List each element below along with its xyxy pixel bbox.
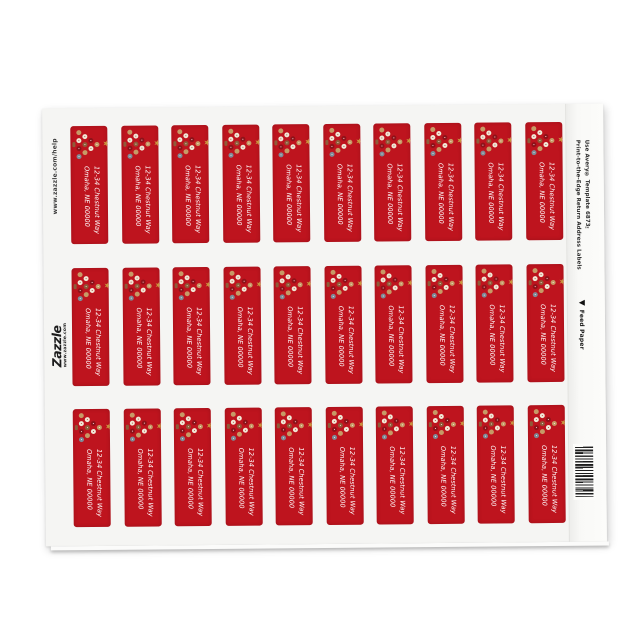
address-label: ★ 12-34 Chestnut Way Omaha, NE 00000 — [373, 123, 411, 241]
christmas-tree-graphic: ★ — [272, 128, 308, 158]
address-label-content: ★ 12-34 Chestnut Way Omaha, NE 00000 — [424, 123, 462, 241]
ornament-icon — [532, 276, 537, 281]
address-line1: 12-34 Chestnut Way — [549, 445, 560, 521]
address-label-content: ★ 12-34 Chestnut Way Omaha, NE 00000 — [275, 407, 313, 525]
ornament-icon — [483, 434, 488, 439]
ornament-icon — [91, 421, 96, 426]
ornament-icon — [436, 139, 441, 144]
ornament-icon — [331, 435, 336, 440]
ornament-icon — [286, 282, 291, 287]
star-icon: ★ — [306, 421, 313, 428]
ornament-icon — [431, 269, 436, 274]
ornament-icon — [183, 141, 188, 146]
ornament-icon — [431, 277, 436, 282]
ornament-icon — [443, 276, 448, 281]
ornament-icon — [531, 134, 536, 139]
ornament-icon — [141, 421, 146, 426]
ornament-icon — [347, 140, 352, 145]
address-line1: 12-34 Chestnut Way — [244, 306, 255, 382]
address-label: ★ 12-34 Chestnut Way Omaha, NE 00000 — [374, 265, 412, 383]
ornament-icon — [550, 279, 555, 284]
address-text: 12-34 Chestnut Way Omaha, NE 00000 — [285, 306, 306, 382]
ornament-icon — [82, 150, 87, 155]
ornament-icon — [185, 275, 190, 280]
ornament-icon — [96, 283, 101, 288]
ornament-icon — [343, 427, 348, 432]
address-label: ★ 12-34 Chestnut Way Omaha, NE 00000 — [174, 408, 212, 526]
ornament-icon — [185, 291, 190, 296]
ornament-icon — [177, 137, 182, 142]
address-line2: Omaha, NE 00000 — [488, 445, 499, 521]
christmas-tree-graphic: ★ — [526, 267, 562, 297]
address-label: ★ 12-34 Chestnut Way Omaha, NE 00000 — [376, 406, 414, 524]
address-line1: 12-34 Chestnut Way — [193, 165, 204, 241]
ornament-icon — [246, 141, 251, 146]
ornament-icon — [443, 284, 448, 289]
ornament-icon — [538, 280, 543, 285]
ornament-icon — [281, 435, 286, 440]
ornament-icon — [391, 135, 396, 140]
ornament-icon — [133, 142, 138, 147]
christmas-tree-graphic: ★ — [525, 126, 561, 156]
tree-trunk-icon — [175, 283, 178, 288]
ornament-icon — [278, 136, 283, 141]
ornament-icon — [438, 430, 443, 435]
ornament-icon — [438, 414, 443, 419]
address-label-content: ★ 12-34 Chestnut Way Omaha, NE 00000 — [324, 265, 362, 383]
address-line1: 12-34 Chestnut Way — [296, 447, 307, 523]
address-line2: Omaha, NE 00000 — [135, 449, 146, 525]
address-line2: Omaha, NE 00000 — [83, 308, 94, 384]
ornament-icon — [292, 278, 297, 283]
address-line1: 12-34 Chestnut Way — [397, 446, 408, 522]
ornament-icon — [278, 144, 283, 149]
address-label-content: ★ 12-34 Chestnut Way Omaha, NE 00000 — [323, 124, 361, 242]
address-label: ★ 12-34 Chestnut Way Omaha, NE 00000 — [275, 407, 313, 525]
ornament-icon — [387, 273, 392, 278]
tree-trunk-icon — [277, 423, 280, 428]
address-line1: 12-34 Chestnut Way — [546, 162, 557, 238]
ornament-icon — [531, 142, 536, 147]
ornament-icon — [230, 412, 235, 417]
barcode — [573, 444, 595, 500]
ornament-icon — [230, 436, 235, 441]
ornament-icon — [185, 283, 190, 288]
ornament-icon — [331, 411, 336, 416]
ornament-icon — [330, 293, 335, 298]
help-url-text: www.zazzle.com/help — [51, 140, 59, 214]
ornament-icon — [387, 289, 392, 294]
tree-trunk-icon — [276, 282, 279, 287]
tree-trunk-icon — [173, 141, 176, 146]
ornament-icon — [139, 146, 144, 151]
ornament-icon — [186, 432, 191, 437]
ornament-icon — [84, 276, 89, 281]
ornament-icon — [480, 143, 485, 148]
christmas-tree-graphic: ★ — [373, 127, 409, 157]
ornament-icon — [549, 138, 554, 143]
address-label: ★ 12-34 Chestnut Way Omaha, NE 00000 — [73, 409, 111, 527]
address-label: ★ 12-34 Chestnut Way Omaha, NE 00000 — [223, 266, 261, 384]
address-text: 12-34 Chestnut Way Omaha, NE 00000 — [385, 163, 406, 239]
address-line1: 12-34 Chestnut Way — [344, 164, 355, 240]
address-line2: Omaha, NE 00000 — [183, 165, 194, 241]
ornament-icon — [241, 286, 246, 291]
zazzle-logo: Zazzle www.zazzle.com — [50, 305, 70, 367]
ornament-icon — [183, 133, 188, 138]
ornament-icon — [133, 150, 138, 155]
ornament-icon — [337, 423, 342, 428]
ornament-icon — [388, 430, 393, 435]
ornament-icon — [381, 277, 386, 282]
address-text: 12-34 Chestnut Way Omaha, NE 00000 — [334, 164, 355, 240]
ornament-icon — [195, 141, 200, 146]
christmas-tree-graphic: ★ — [70, 130, 106, 160]
ornament-icon — [189, 145, 194, 150]
ornament-icon — [348, 281, 353, 286]
ornament-icon — [79, 437, 84, 442]
ornament-icon — [91, 429, 96, 434]
tree-trunk-icon — [476, 139, 479, 144]
address-line2: Omaha, NE 00000 — [436, 304, 447, 380]
ornament-icon — [533, 433, 538, 438]
christmas-tree-graphic: ★ — [426, 410, 462, 440]
labels-grid: ★ 12-34 Chestnut Way Omaha, NE 00000 ★ 1… — [70, 122, 565, 527]
address-label: ★ 12-34 Chestnut Way Omaha, NE 00000 — [71, 267, 109, 385]
christmas-tree-graphic: ★ — [123, 412, 159, 442]
address-text: 12-34 Chestnut Way Omaha, NE 00000 — [233, 165, 254, 241]
star-icon: ★ — [204, 280, 211, 287]
address-line2: Omaha, NE 00000 — [387, 446, 398, 522]
ornament-icon — [292, 286, 297, 291]
ornament-icon — [280, 294, 285, 299]
address-label: ★ 12-34 Chestnut Way Omaha, NE 00000 — [424, 123, 462, 241]
ornament-icon — [545, 417, 550, 422]
address-line2: Omaha, NE 00000 — [234, 306, 245, 382]
ornament-icon — [337, 431, 342, 436]
ornament-icon — [134, 275, 139, 280]
ornament-icon — [533, 417, 538, 422]
ornament-icon — [544, 284, 549, 289]
ornament-icon — [79, 413, 84, 418]
address-label-content: ★ 12-34 Chestnut Way Omaha, NE 00000 — [70, 126, 108, 244]
ornament-icon — [247, 282, 252, 287]
ornament-icon — [399, 281, 404, 286]
ornament-icon — [293, 427, 298, 432]
star-icon: ★ — [558, 419, 565, 426]
ornament-icon — [177, 145, 182, 150]
address-text: 12-34 Chestnut Way Omaha, NE 00000 — [185, 448, 206, 524]
ornament-icon — [129, 429, 134, 434]
ornament-icon — [393, 285, 398, 290]
ornament-icon — [298, 282, 303, 287]
ornament-icon — [186, 424, 191, 429]
address-line1: 12-34 Chestnut Way — [347, 447, 358, 523]
tree-trunk-icon — [527, 138, 530, 143]
ornament-icon — [186, 416, 191, 421]
address-label: ★ 12-34 Chestnut Way Omaha, NE 00000 — [70, 126, 108, 244]
star-icon: ★ — [557, 277, 564, 284]
ornament-icon — [234, 141, 239, 146]
ornament-icon — [134, 291, 139, 296]
ornament-icon — [394, 426, 399, 431]
christmas-tree-graphic: ★ — [275, 411, 311, 441]
ornament-icon — [330, 285, 335, 290]
address-line2: Omaha, NE 00000 — [486, 163, 497, 239]
address-line1: 12-34 Chestnut Way — [345, 305, 356, 381]
address-label-content: ★ 12-34 Chestnut Way Omaha, NE 00000 — [224, 408, 262, 526]
ornament-icon — [191, 287, 196, 292]
star-icon: ★ — [253, 139, 260, 146]
ornament-icon — [229, 278, 234, 283]
star-icon: ★ — [154, 422, 161, 429]
ornament-icon — [230, 420, 235, 425]
ornament-icon — [228, 137, 233, 142]
address-line2: Omaha, NE 00000 — [334, 164, 345, 240]
ornament-icon — [278, 152, 283, 157]
address-label: ★ 12-34 Chestnut Way Omaha, NE 00000 — [122, 267, 160, 385]
christmas-tree-graphic: ★ — [324, 269, 360, 299]
ornament-icon — [489, 414, 494, 419]
ornament-icon — [229, 294, 234, 299]
ornament-icon — [532, 268, 537, 273]
ornament-icon — [127, 130, 132, 135]
ornament-icon — [444, 418, 449, 423]
star-icon: ★ — [556, 136, 563, 143]
tree-trunk-icon — [478, 280, 481, 285]
ornament-icon — [336, 273, 341, 278]
ornament-icon — [78, 288, 83, 293]
address-label: ★ 12-34 Chestnut Way Omaha, NE 00000 — [474, 122, 512, 240]
ornament-icon — [486, 139, 491, 144]
tree-trunk-icon — [125, 425, 128, 430]
ornament-icon — [287, 423, 292, 428]
ornament-icon — [437, 288, 442, 293]
address-label: ★ 12-34 Chestnut Way Omaha, NE 00000 — [426, 406, 464, 524]
address-line2: Omaha, NE 00000 — [438, 446, 449, 522]
ornament-icon — [391, 143, 396, 148]
ornament-icon — [533, 425, 538, 430]
ornament-icon — [449, 280, 454, 285]
address-text: 12-34 Chestnut Way Omaha, NE 00000 — [435, 163, 456, 239]
ornament-icon — [296, 140, 301, 145]
christmas-tree-graphic: ★ — [323, 128, 359, 158]
address-label-content: ★ 12-34 Chestnut Way Omaha, NE 00000 — [425, 264, 463, 382]
address-line2: Omaha, NE 00000 — [335, 305, 346, 381]
star-icon: ★ — [356, 421, 363, 428]
address-text: 12-34 Chestnut Way Omaha, NE 00000 — [236, 448, 257, 524]
ornament-icon — [191, 279, 196, 284]
ornament-icon — [140, 287, 145, 292]
address-text: 12-34 Chestnut Way Omaha, NE 00000 — [133, 307, 154, 383]
address-text: 12-34 Chestnut Way Omaha, NE 00000 — [486, 162, 507, 238]
ornament-icon — [140, 279, 145, 284]
ornament-icon — [488, 288, 493, 293]
christmas-tree-graphic: ★ — [375, 269, 411, 299]
star-icon: ★ — [254, 280, 261, 287]
christmas-tree-graphic: ★ — [72, 271, 108, 301]
ornament-icon — [480, 151, 485, 156]
ornament-icon — [538, 272, 543, 277]
christmas-tree-graphic: ★ — [476, 268, 512, 298]
ornament-icon — [343, 419, 348, 424]
tree-trunk-icon — [274, 140, 277, 145]
address-line1: 12-34 Chestnut Way — [496, 162, 507, 238]
ornament-icon — [537, 138, 542, 143]
ornament-icon — [379, 127, 384, 132]
tree-trunk-icon — [74, 284, 77, 289]
star-icon: ★ — [101, 140, 108, 147]
address-label-content: ★ 12-34 Chestnut Way Omaha, NE 00000 — [477, 405, 515, 523]
tree-trunk-icon — [528, 280, 531, 285]
ornament-icon — [180, 420, 185, 425]
address-text: 12-34 Chestnut Way Omaha, NE 00000 — [537, 303, 558, 379]
ornament-icon — [494, 276, 499, 281]
star-icon: ★ — [455, 137, 462, 144]
ornament-icon — [501, 421, 506, 426]
address-label-content: ★ 12-34 Chestnut Way Omaha, NE 00000 — [73, 409, 111, 527]
tree-trunk-icon — [327, 423, 330, 428]
address-text: 12-34 Chestnut Way Omaha, NE 00000 — [488, 445, 509, 521]
ornament-icon — [539, 413, 544, 418]
ornament-icon — [349, 423, 354, 428]
address-line2: Omaha, NE 00000 — [386, 305, 397, 381]
address-line2: Omaha, NE 00000 — [536, 162, 547, 238]
address-label: ★ 12-34 Chestnut Way Omaha, NE 00000 — [121, 125, 159, 243]
address-label: ★ 12-34 Chestnut Way Omaha, NE 00000 — [325, 407, 363, 525]
ornament-icon — [388, 422, 393, 427]
ornament-icon — [79, 429, 84, 434]
ornament-icon — [494, 284, 499, 289]
address-line1: 12-34 Chestnut Way — [143, 307, 154, 383]
ornament-icon — [241, 278, 246, 283]
ornament-icon — [342, 285, 347, 290]
ornament-icon — [180, 428, 185, 433]
christmas-tree-graphic: ★ — [121, 129, 157, 159]
ornament-icon — [500, 280, 505, 285]
ornament-icon — [85, 425, 90, 430]
ornament-icon — [531, 150, 536, 155]
ornament-icon — [236, 424, 241, 429]
address-text: 12-34 Chestnut Way Omaha, NE 00000 — [386, 305, 407, 381]
ornament-icon — [431, 285, 436, 290]
ornament-icon — [286, 290, 291, 295]
ornament-icon — [379, 135, 384, 140]
address-line1: 12-34 Chestnut Way — [395, 163, 406, 239]
ornament-icon — [482, 276, 487, 281]
christmas-tree-graphic: ★ — [122, 271, 158, 301]
address-line1: 12-34 Chestnut Way — [92, 166, 103, 242]
address-line2: Omaha, NE 00000 — [286, 447, 297, 523]
ornament-icon — [280, 270, 285, 275]
ornament-icon — [331, 419, 336, 424]
ornament-icon — [177, 153, 182, 158]
address-line1: 12-34 Chestnut Way — [94, 449, 105, 525]
ornament-icon — [482, 284, 487, 289]
ornament-icon — [281, 419, 286, 424]
ornament-icon — [192, 428, 197, 433]
ornament-icon — [539, 421, 544, 426]
address-text: 12-34 Chestnut Way Omaha, NE 00000 — [337, 447, 358, 523]
star-icon: ★ — [406, 279, 413, 286]
ornament-icon — [488, 280, 493, 285]
address-line1: 12-34 Chestnut Way — [396, 305, 407, 381]
ornament-icon — [397, 139, 402, 144]
ornament-icon — [85, 433, 90, 438]
ornament-icon — [532, 284, 537, 289]
ornament-icon — [287, 431, 292, 436]
address-label: ★ 12-34 Chestnut Way Omaha, NE 00000 — [171, 125, 209, 243]
ornament-icon — [498, 138, 503, 143]
christmas-tree-graphic: ★ — [73, 413, 109, 443]
ornament-icon — [129, 437, 134, 442]
ornament-icon — [486, 147, 491, 152]
ornament-icon — [394, 418, 399, 423]
ornament-icon — [82, 142, 87, 147]
address-label: ★ 12-34 Chestnut Way Omaha, NE 00000 — [425, 264, 463, 382]
tree-trunk-icon — [326, 281, 329, 286]
ornament-icon — [482, 268, 487, 273]
ornament-icon — [382, 426, 387, 431]
ornament-icon — [90, 288, 95, 293]
ornament-icon — [228, 129, 233, 134]
address-line2: Omaha, NE 00000 — [233, 165, 244, 241]
address-text: 12-34 Chestnut Way Omaha, NE 00000 — [536, 162, 557, 238]
address-line2: Omaha, NE 00000 — [539, 445, 550, 521]
tree-trunk-icon — [428, 422, 431, 427]
ornament-icon — [94, 142, 99, 147]
ornament-icon — [385, 139, 390, 144]
ornament-icon — [483, 418, 488, 423]
zazzle-logo-text: Zazzle — [50, 305, 64, 367]
address-label: ★ 12-34 Chestnut Way Omaha, NE 00000 — [123, 408, 161, 526]
ornament-icon — [299, 423, 304, 428]
ornament-icon — [146, 283, 151, 288]
address-line2: Omaha, NE 00000 — [184, 307, 195, 383]
ornament-icon — [192, 420, 197, 425]
address-label: ★ 12-34 Chestnut Way Omaha, NE 00000 — [477, 405, 515, 523]
star-icon: ★ — [508, 419, 515, 426]
ornament-icon — [329, 128, 334, 133]
ornament-icon — [293, 419, 298, 424]
ornament-icon — [545, 425, 550, 430]
address-label-content: ★ 12-34 Chestnut Way Omaha, NE 00000 — [374, 265, 412, 383]
ornament-icon — [177, 129, 182, 134]
address-line1: 12-34 Chestnut Way — [145, 448, 156, 524]
product-image: www.zazzle.com/help Zazzle www.zazzle.co… — [0, 0, 644, 644]
ornament-icon — [531, 126, 536, 131]
ornament-icon — [235, 274, 240, 279]
ornament-icon — [242, 428, 247, 433]
ornament-icon — [78, 272, 83, 277]
address-label-content: ★ 12-34 Chestnut Way Omaha, NE 00000 — [222, 125, 260, 243]
address-label-content: ★ 12-34 Chestnut Way Omaha, NE 00000 — [475, 264, 513, 382]
ornament-icon — [379, 151, 384, 156]
ornament-icon — [147, 425, 152, 430]
ornament-icon — [145, 142, 150, 147]
ornament-icon — [544, 276, 549, 281]
address-label-content: ★ 12-34 Chestnut Way Omaha, NE 00000 — [123, 408, 161, 526]
christmas-tree-graphic: ★ — [474, 126, 510, 156]
ornament-icon — [128, 271, 133, 276]
ornament-icon — [448, 139, 453, 144]
ornament-icon — [438, 422, 443, 427]
address-label: ★ 12-34 Chestnut Way Omaha, NE 00000 — [324, 265, 362, 383]
ornament-icon — [430, 135, 435, 140]
tree-trunk-icon — [226, 424, 229, 429]
ornament-icon — [489, 422, 494, 427]
address-line1: 12-34 Chestnut Way — [498, 445, 509, 521]
